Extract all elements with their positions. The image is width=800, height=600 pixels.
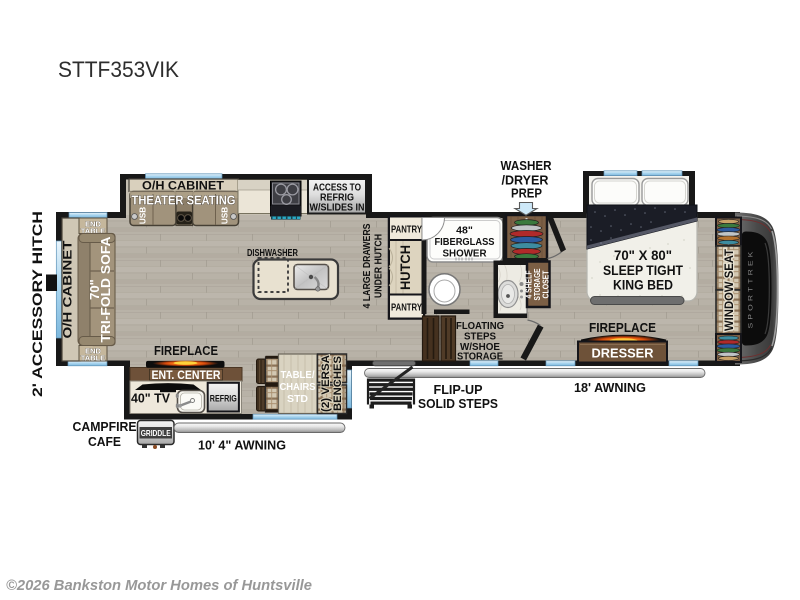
svg-text:USB: USB [221,207,230,224]
svg-text:WASHER: WASHER [501,158,553,173]
svg-text:ENT. CENTER: ENT. CENTER [152,370,222,382]
svg-text:CAMPFIRE: CAMPFIRE [73,419,137,434]
svg-text:PANTRY: PANTRY [391,303,422,314]
svg-text:FIBERGLASS: FIBERGLASS [435,236,495,248]
svg-text:SHOWER: SHOWER [443,248,487,260]
svg-text:TABLE/: TABLE/ [281,369,315,381]
svg-text:SOLID STEPS: SOLID STEPS [418,396,498,411]
svg-text:UNDER HUTCH: UNDER HUTCH [373,234,385,298]
svg-text:10' 4" AWNING: 10' 4" AWNING [198,438,286,453]
svg-text:GRIDDLE: GRIDDLE [141,429,171,438]
svg-text:STTF353VIK: STTF353VIK [58,57,179,82]
svg-text:2' ACCESSORY HITCH: 2' ACCESSORY HITCH [30,211,45,397]
svg-text:USB: USB [139,207,148,224]
svg-text:TABLE: TABLE [81,354,105,363]
svg-text:18' AWNING: 18' AWNING [574,380,646,395]
svg-text:CLOSET: CLOSET [542,271,551,299]
svg-text:W/SLIDES IN: W/SLIDES IN [310,203,365,214]
svg-text:©2026 Bankston Motor Homes of: ©2026 Bankston Motor Homes of Huntsville [6,578,312,594]
svg-text:FIREPLACE: FIREPLACE [154,344,218,358]
svg-text:4 LARGE DRAWERS: 4 LARGE DRAWERS [361,224,373,309]
svg-text:WINDOW SEAT: WINDOW SEAT [724,249,736,331]
svg-text:40" TV: 40" TV [131,392,171,406]
svg-text:(2) VERSA: (2) VERSA [320,355,332,412]
svg-text:TRI-FOLD SOFA: TRI-FOLD SOFA [98,236,113,343]
svg-text:STD: STD [287,393,308,405]
svg-text:THEATER SEATING: THEATER SEATING [132,193,236,208]
svg-text:CAFE: CAFE [88,434,121,449]
svg-text:70" X 80": 70" X 80" [614,248,672,263]
svg-text:KING BED: KING BED [613,278,673,293]
svg-text:DRESSER: DRESSER [592,347,654,361]
svg-text:CHAIRS: CHAIRS [280,381,316,393]
svg-text:DISHWASHER: DISHWASHER [247,248,298,259]
svg-text:PREP: PREP [511,186,542,201]
svg-text:HUTCH: HUTCH [398,245,413,290]
svg-text:BENCHES: BENCHES [332,356,344,411]
svg-text:48": 48" [456,225,473,237]
svg-text:O/H CABINET: O/H CABINET [142,181,224,193]
svg-text:SLEEP TIGHT: SLEEP TIGHT [603,263,684,278]
svg-text:SPORTTREK: SPORTTREK [749,249,755,329]
svg-text:REFRIG: REFRIG [210,394,237,405]
svg-text:FLIP-UP: FLIP-UP [434,382,483,397]
svg-text:STORAGE: STORAGE [457,351,503,363]
svg-text:PANTRY: PANTRY [391,225,422,236]
svg-text:O/H CABINET: O/H CABINET [61,240,75,339]
svg-text:FIREPLACE: FIREPLACE [589,321,656,335]
